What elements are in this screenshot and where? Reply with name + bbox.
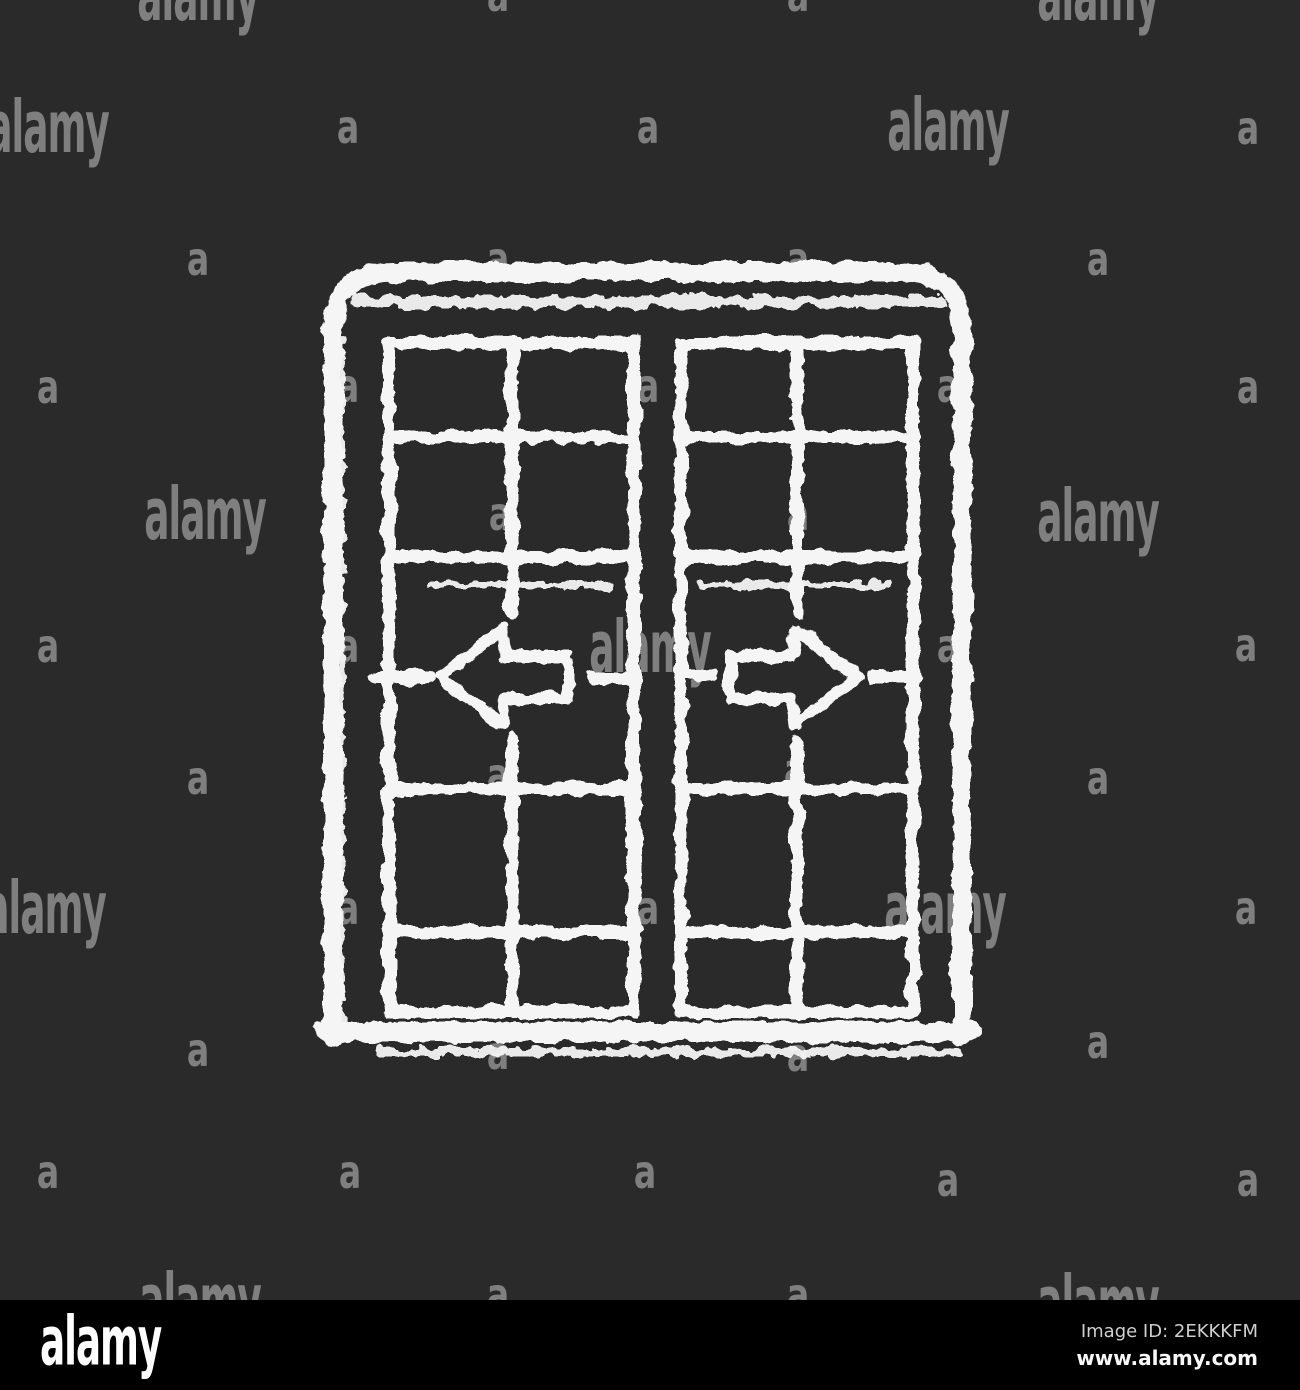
left-door-mullion-stubs	[376, 677, 634, 679]
left-arrow-icon	[440, 629, 568, 724]
alamy-logo: alamy	[40, 1308, 161, 1376]
alamy-url: www.alamy.com	[1076, 1345, 1258, 1371]
outer-frame	[324, 272, 970, 1038]
sliding-patio-doors-chalk-icon	[0, 0, 1300, 1390]
footer-bar: alamy Image ID: 2EKKKFM www.alamy.com	[0, 1300, 1300, 1390]
right-door-mullion-stubs	[681, 675, 916, 677]
left-door	[376, 343, 634, 1012]
footer-info: Image ID: 2EKKKFM www.alamy.com	[1076, 1319, 1258, 1371]
image-id-label: Image ID: 2EKKKFM	[1076, 1319, 1258, 1345]
stock-image-page: alamyaaalamyalamyaaalamyaaaaaaaaaaalamya…	[0, 0, 1300, 1390]
right-door	[681, 343, 916, 1012]
right-arrow-icon	[730, 629, 858, 724]
